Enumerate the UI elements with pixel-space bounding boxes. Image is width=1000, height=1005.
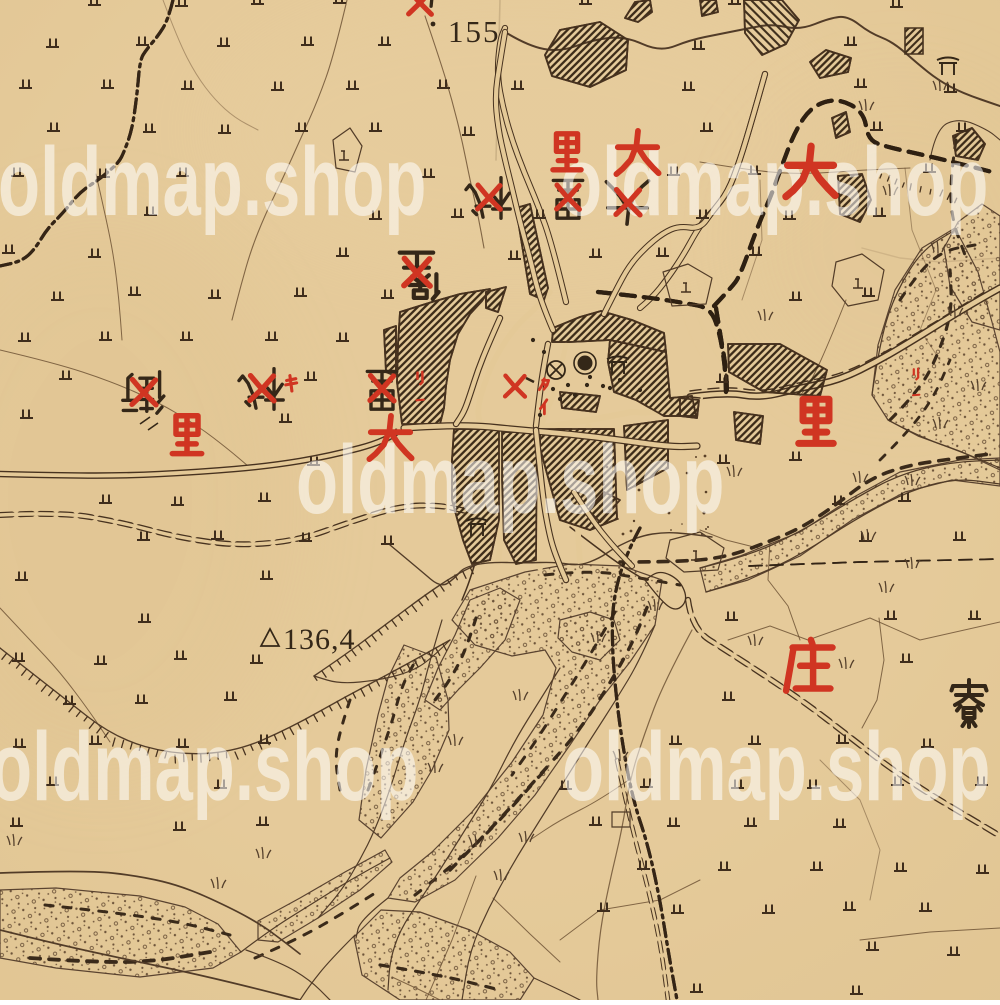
- svg-text:oldmap.shop: oldmap.shop: [0, 127, 426, 235]
- svg-text:136,4: 136,4: [283, 623, 356, 656]
- svg-text:oldmap.shop: oldmap.shop: [560, 127, 988, 235]
- svg-text:oldmap.shop: oldmap.shop: [562, 712, 990, 820]
- svg-text:oldmap.shop: oldmap.shop: [0, 712, 418, 820]
- svg-text:oldmap.shop: oldmap.shop: [296, 425, 724, 533]
- svg-text:155: 155: [448, 14, 501, 49]
